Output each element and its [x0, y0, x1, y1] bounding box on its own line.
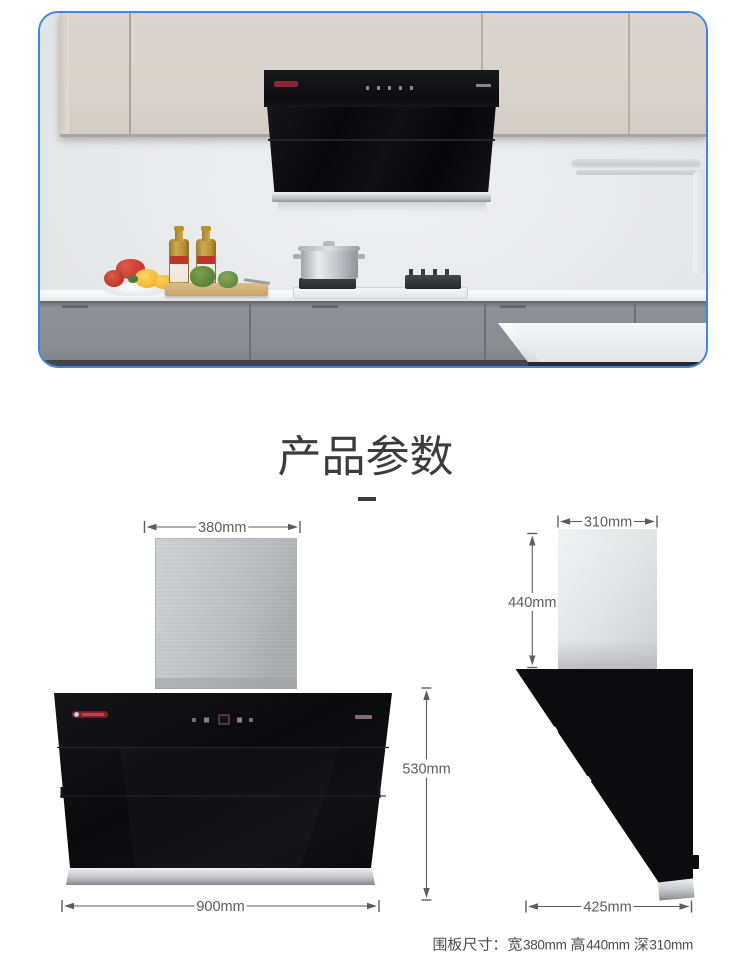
svg-text:440mm: 440mm — [508, 595, 556, 611]
svg-text:530mm: 530mm — [402, 762, 450, 778]
svg-text:425mm: 425mm — [583, 900, 631, 916]
svg-text:900mm: 900mm — [196, 899, 244, 915]
svg-text:310mm: 310mm — [649, 938, 693, 953]
svg-text:380mm: 380mm — [523, 938, 567, 953]
svg-text:310mm: 310mm — [584, 515, 632, 531]
svg-text:380mm: 380mm — [198, 520, 246, 536]
svg-text:440mm: 440mm — [586, 938, 630, 953]
